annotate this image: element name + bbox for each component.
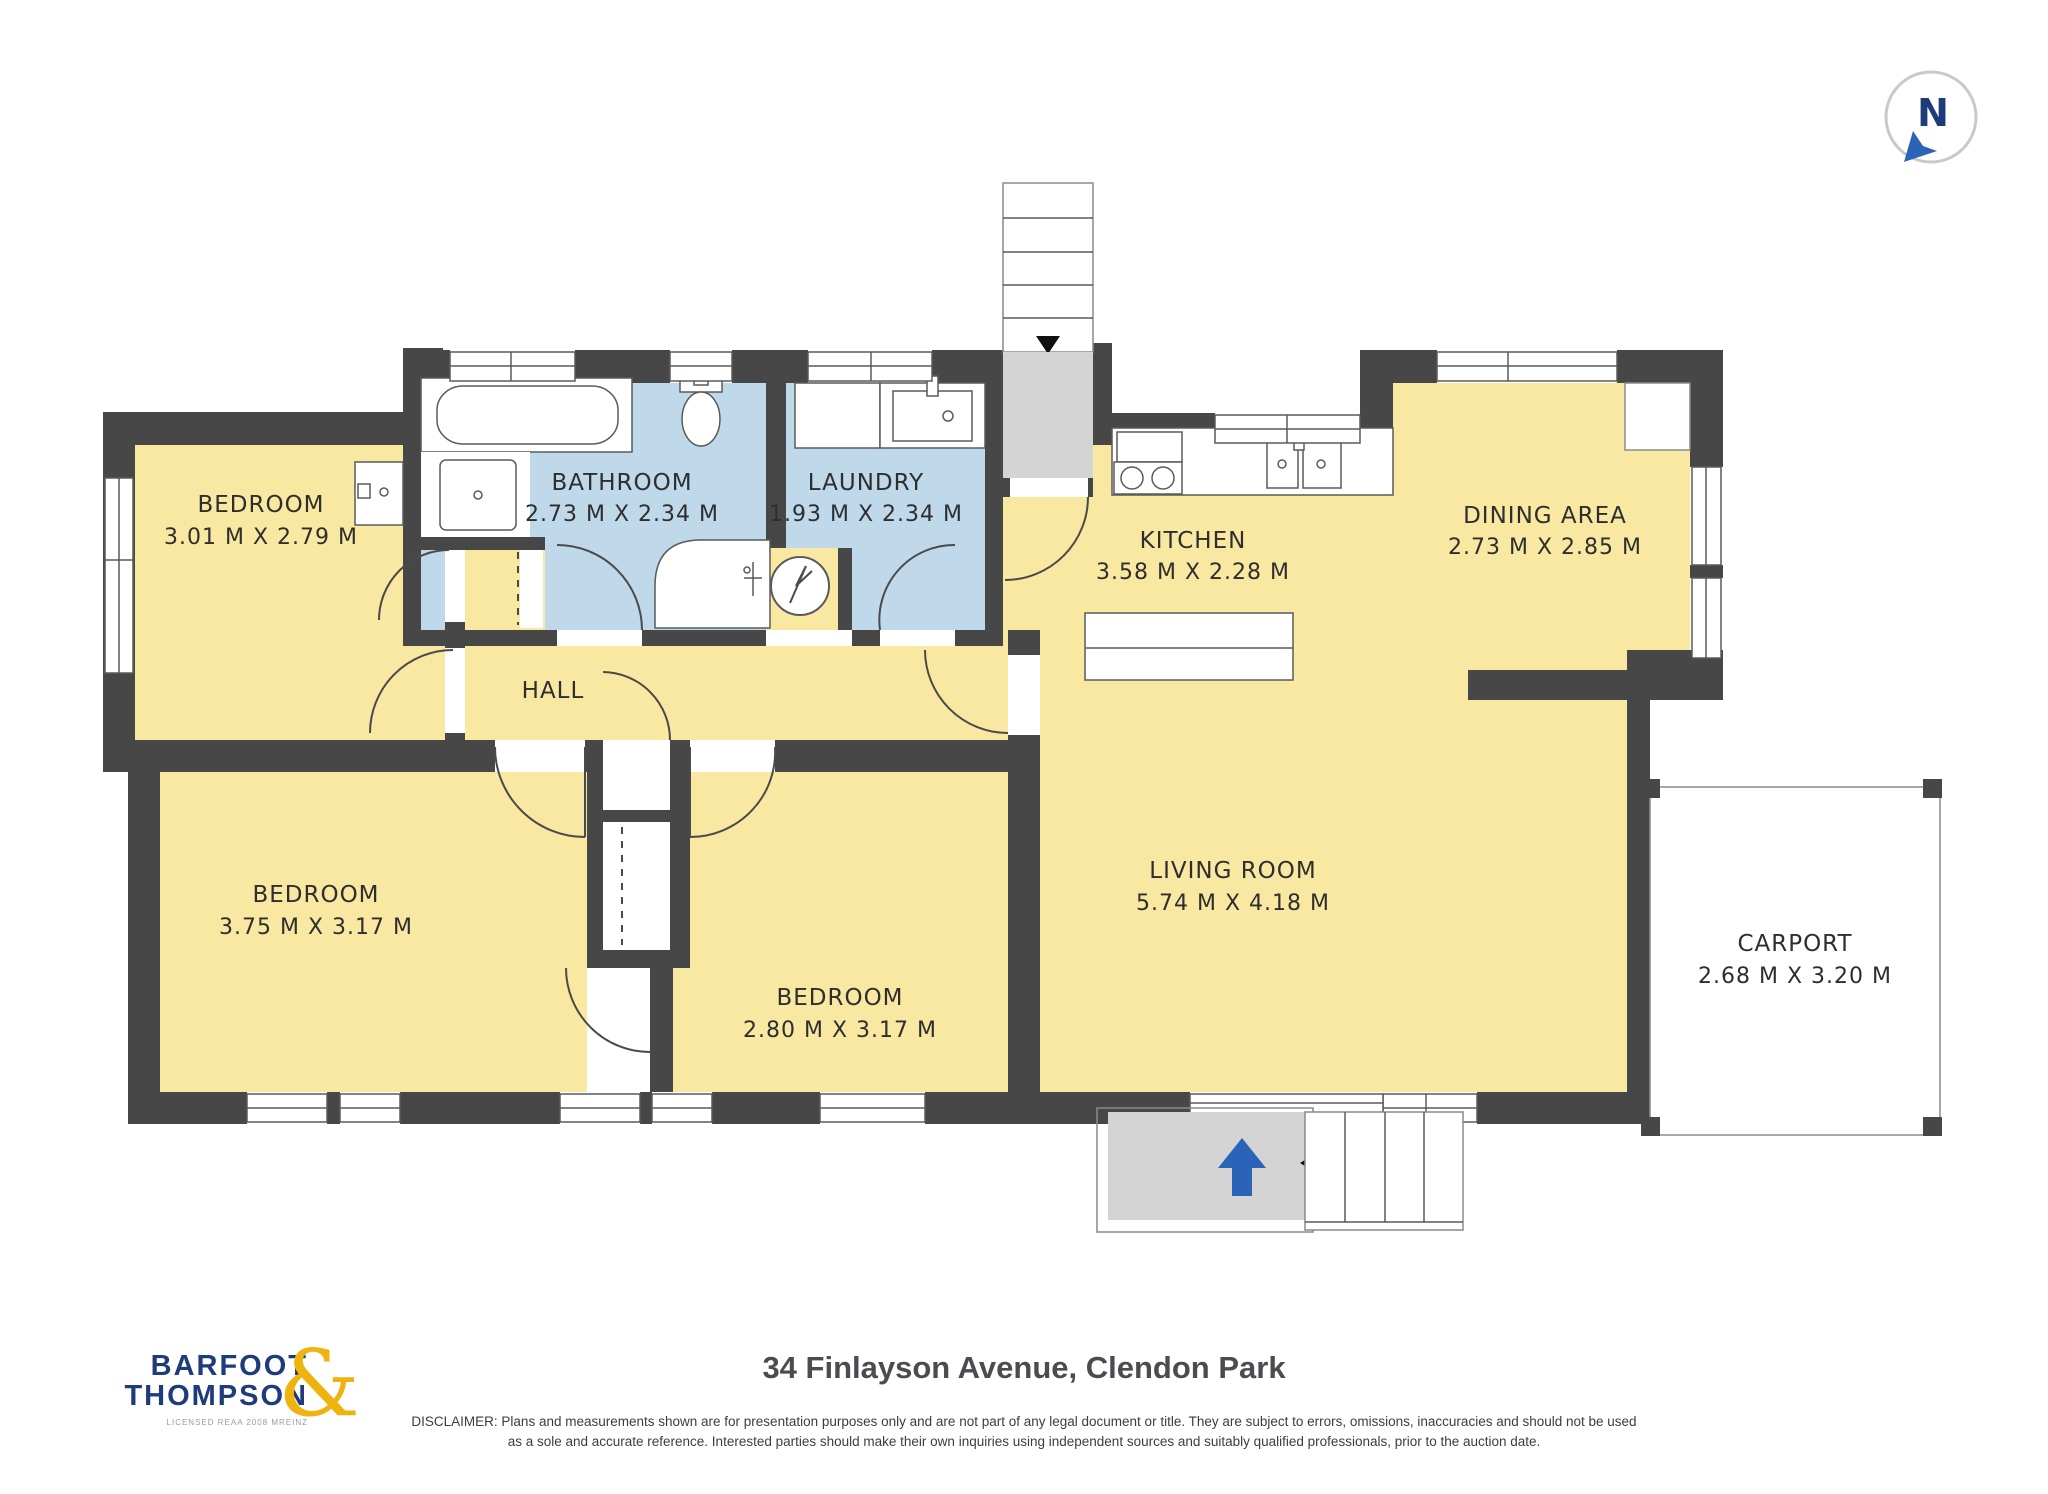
room-dims: 3.58 M X 2.28 M: [1096, 560, 1290, 585]
window: [450, 352, 575, 381]
room-label: BATHROOM: [551, 470, 692, 496]
page-title: 34 Finlayson Avenue, Clendon Park: [0, 1350, 2048, 1386]
front-steps: [1305, 1112, 1463, 1230]
north-compass: N: [1886, 72, 1976, 162]
back-landing: [1003, 352, 1093, 478]
room-label: CARPORT: [1737, 931, 1852, 957]
room-dims: 2.68 M X 3.20 M: [1698, 964, 1892, 989]
shower-icon: [655, 540, 770, 628]
window: [808, 352, 932, 381]
pantry-cupboard: [1625, 383, 1690, 450]
window: [560, 1094, 640, 1122]
center-wardrobe: [603, 822, 670, 950]
disclaimer-line2: as a sole and accurate reference. Intere…: [0, 1432, 2048, 1452]
room-label: BEDROOM: [197, 492, 324, 518]
entry-porch: [1097, 1108, 1318, 1232]
room-dims: 1.93 M X 2.34 M: [769, 502, 963, 527]
window: [1215, 415, 1360, 443]
room-dims: 2.80 M X 3.17 M: [743, 1018, 937, 1043]
room-label: HALL: [522, 678, 585, 704]
bedroom1-wardrobe: [518, 550, 543, 628]
kitchen-island: [1085, 613, 1293, 680]
carport: [1641, 779, 1942, 1136]
room-dims: 2.73 M X 2.34 M: [525, 502, 719, 527]
window: [340, 1094, 400, 1122]
window: [247, 1094, 327, 1122]
room-dims: 3.01 M X 2.79 M: [164, 525, 358, 550]
window: [670, 352, 732, 381]
window: [820, 1094, 925, 1122]
toilet-icon: [680, 372, 722, 446]
laundry-tub-icon: [795, 376, 985, 448]
room-label: BEDROOM: [776, 985, 903, 1011]
back-stairs: [1003, 183, 1093, 478]
window: [652, 1094, 712, 1122]
stove-icon: [1114, 432, 1182, 494]
floor-plan: N BEDROOM 3.01 M X 2.79 M BATHROOM 2.73 …: [0, 0, 2048, 1494]
room-dims: 5.74 M X 4.18 M: [1136, 891, 1330, 916]
window: [1437, 352, 1617, 381]
compass-n-label: N: [1917, 91, 1949, 135]
window: [1692, 467, 1721, 565]
window: [105, 478, 133, 673]
bedroom3-floor: [673, 772, 1008, 1092]
disclaimer-line1: DISCLAIMER: Plans and measurements shown…: [0, 1412, 2048, 1432]
bathroom-vanity-icon: [421, 452, 530, 537]
room-label: LIVING ROOM: [1149, 858, 1317, 884]
bathtub-icon: [421, 378, 632, 452]
bedroom1-vanity-icon: [355, 462, 403, 525]
room-dims: 2.73 M X 2.85 M: [1448, 535, 1642, 560]
window: [1692, 578, 1721, 658]
floor-plan-page: N BEDROOM 3.01 M X 2.79 M BATHROOM 2.73 …: [0, 0, 2048, 1494]
room-label: LAUNDRY: [808, 470, 924, 496]
room-label: DINING AREA: [1463, 503, 1627, 529]
room-label: KITCHEN: [1140, 528, 1247, 554]
room-dims: 3.75 M X 3.17 M: [219, 915, 413, 940]
disclaimer: DISCLAIMER: Plans and measurements shown…: [0, 1412, 2048, 1453]
porch-floor: [1108, 1112, 1305, 1220]
room-label: BEDROOM: [252, 882, 379, 908]
hot-water-cylinder-icon: [771, 557, 829, 615]
